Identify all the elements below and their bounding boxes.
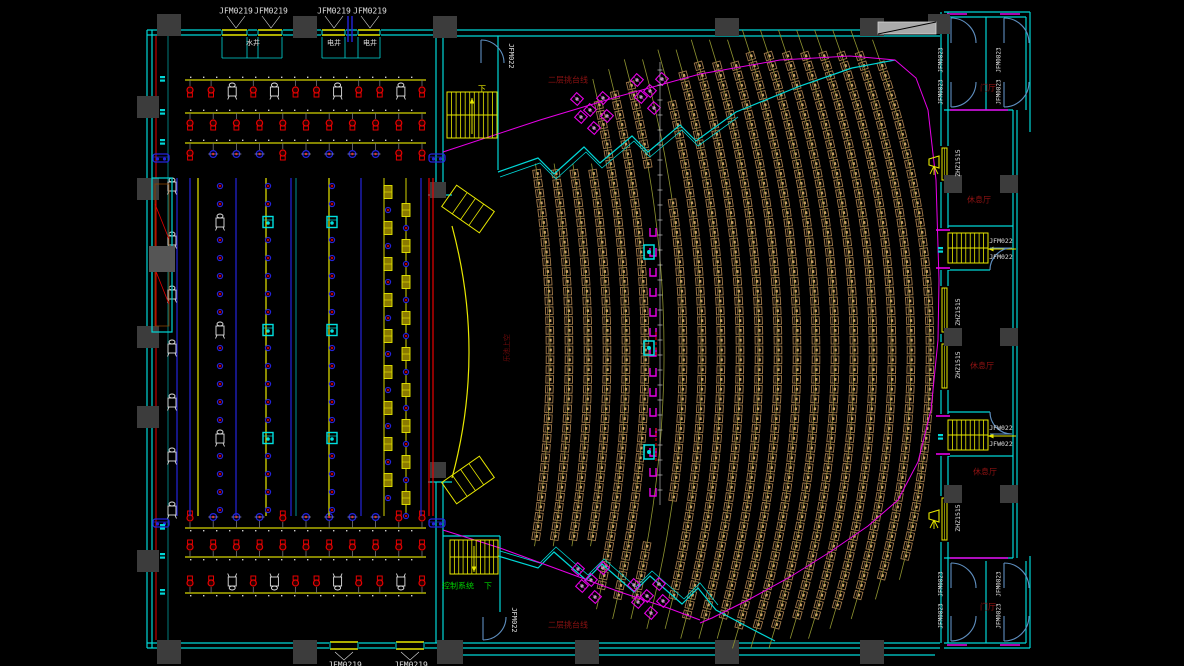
label: JFM0823 [996,47,1003,73]
label: JFM0823 [938,571,945,597]
label: 控制系统 [442,581,474,591]
label: JFM0823 [996,603,1003,629]
seating [532,51,934,629]
label: 二层挑台线 [548,620,588,630]
label: 门厅 [980,602,996,612]
label: 休息厅 [970,361,994,371]
label: ZHZ1515 [954,149,962,176]
label: JFM0219 [394,661,428,666]
label: JFM022 [989,253,1013,261]
label: 水井 [246,38,260,47]
stage-verticals [168,178,434,519]
label: ZHZ1515 [954,351,962,378]
label: 电井 [327,38,341,47]
label: JFM0219 [317,7,351,16]
label: JFM0823 [938,79,945,105]
label: JFM022 [507,43,515,68]
wall-cabinet [149,178,175,332]
label: JFM022 [510,607,518,632]
label: JFW022 [989,440,1013,448]
stage-apron [442,185,495,504]
label: ZHZ1515 [954,504,962,531]
floor-plan-svg: JFM0219JFM0219JFM0219JFM0219水井电井电井JFM022… [0,0,1184,666]
label: JFW022 [989,424,1013,432]
label: 门厅 [980,83,996,93]
label: JFM0219 [254,7,288,16]
label: 电井 [363,38,377,47]
label: JFM0823 [996,79,1003,105]
label: 下 [484,582,492,591]
stairs [447,92,1016,574]
label: JFM022 [989,237,1013,245]
label: JFM0219 [219,7,253,16]
label: JFM0823 [938,47,945,73]
label: 乐池上空 [502,334,511,362]
label: JFM0219 [328,661,362,666]
seat-circuit-lines [535,30,931,648]
label: ZHZ1515 [954,298,962,325]
label: 休息厅 [973,467,997,477]
label: 下 [478,85,486,94]
label: 休息厅 [967,195,991,205]
label: JFM0823 [996,571,1003,597]
label: JFM0823 [938,603,945,629]
label: JFM0219 [353,7,387,16]
label: 二层挑台线 [548,75,588,85]
cad-viewport: JFM0219JFM0219JFM0219JFM0219水井电井电井JFM022… [0,0,1184,666]
